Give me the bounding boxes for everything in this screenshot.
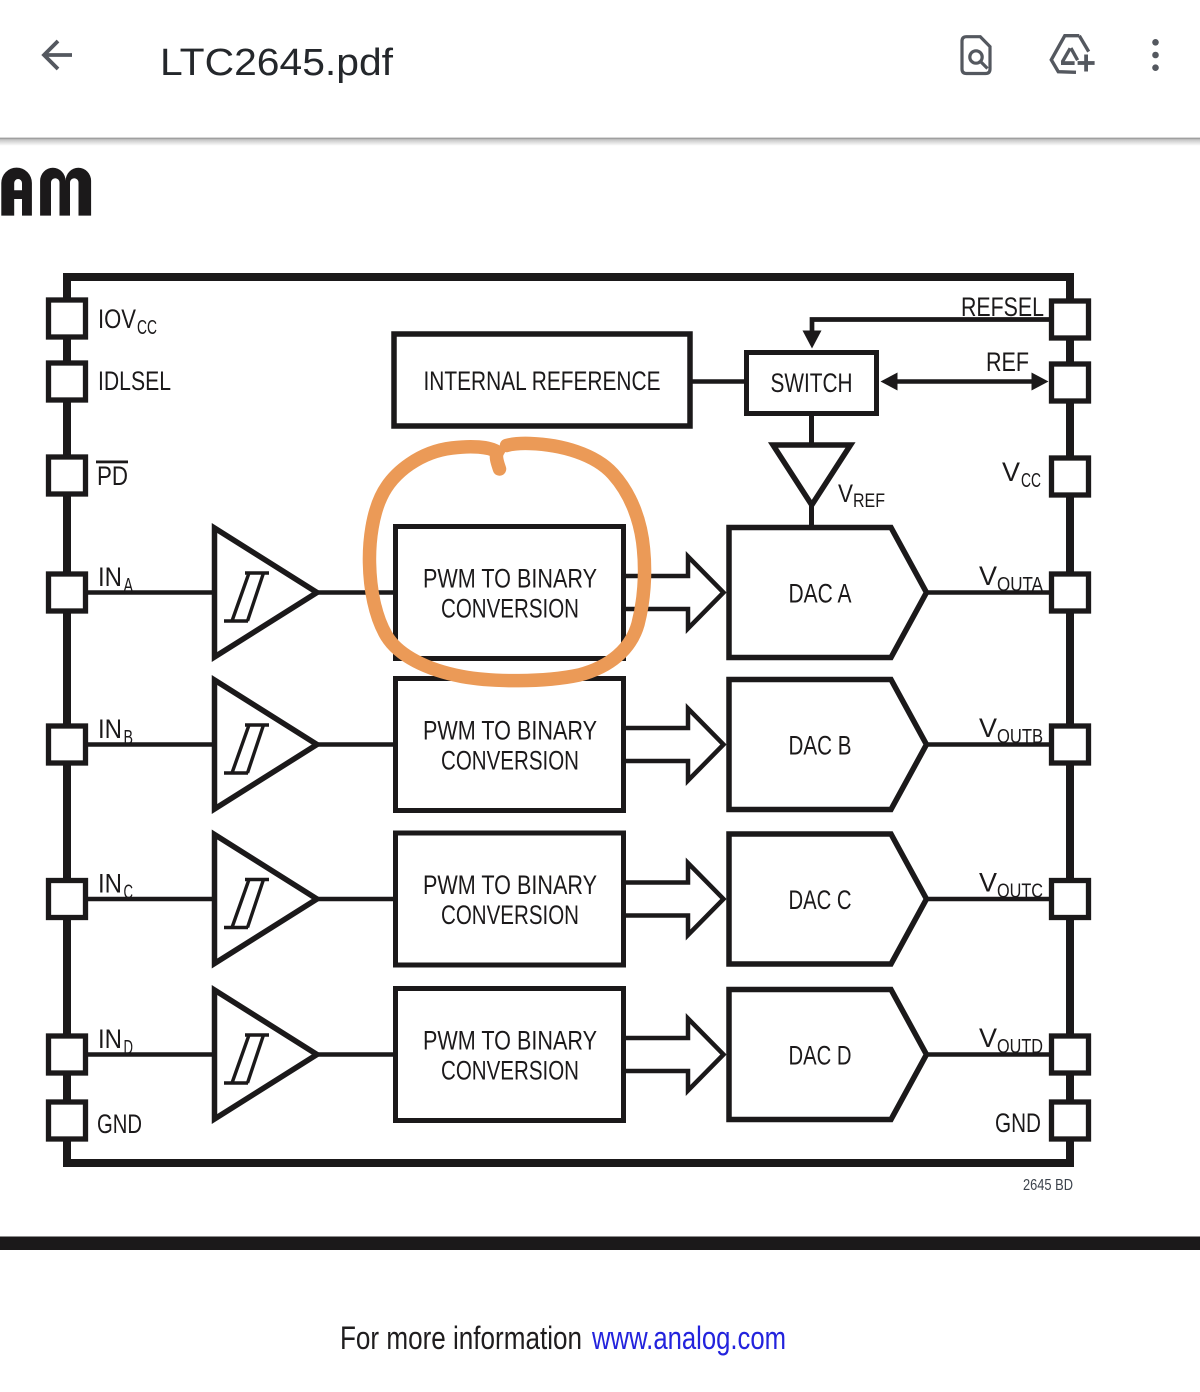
svg-text:PWM TO BINARY: PWM TO BINARY xyxy=(423,564,597,594)
svg-text:DAC B: DAC B xyxy=(789,731,852,761)
svg-text:IOV: IOV xyxy=(98,304,136,334)
svg-text:V: V xyxy=(1002,457,1020,487)
svg-text:LTC2645.pdf: LTC2645.pdf xyxy=(160,42,393,84)
svg-text:V: V xyxy=(979,713,997,743)
svg-text:V: V xyxy=(838,480,853,508)
svg-text:2645 BD: 2645 BD xyxy=(1023,1177,1073,1194)
svg-text:GND: GND xyxy=(995,1108,1041,1138)
svg-text:DAC A: DAC A xyxy=(789,579,852,609)
svg-text:www.analog.com: www.analog.com xyxy=(591,1320,786,1356)
svg-text:IDLSEL: IDLSEL xyxy=(98,366,171,396)
svg-text:IN: IN xyxy=(98,1024,122,1054)
svg-text:CC: CC xyxy=(137,317,157,339)
svg-text:For more information: For more information xyxy=(340,1320,582,1356)
svg-text:REF: REF xyxy=(853,491,885,512)
svg-text:IN: IN xyxy=(98,714,122,744)
svg-text:PD: PD xyxy=(97,461,128,491)
svg-text:IN: IN xyxy=(98,562,122,592)
svg-text:V: V xyxy=(979,561,997,591)
svg-text:IN: IN xyxy=(98,869,122,899)
svg-text:CONVERSION: CONVERSION xyxy=(441,900,579,930)
svg-text:GND: GND xyxy=(97,1109,142,1139)
svg-text:DAC D: DAC D xyxy=(789,1041,852,1071)
svg-text:DAC C: DAC C xyxy=(789,885,852,915)
svg-text:INTERNAL REFERENCE: INTERNAL REFERENCE xyxy=(424,366,661,396)
svg-text:CONVERSION: CONVERSION xyxy=(441,746,579,776)
svg-text:SWITCH: SWITCH xyxy=(771,368,853,398)
svg-text:REF: REF xyxy=(986,347,1029,377)
svg-text:PWM TO BINARY: PWM TO BINARY xyxy=(423,1026,597,1056)
svg-text:PWM TO BINARY: PWM TO BINARY xyxy=(423,716,597,746)
svg-text:CC: CC xyxy=(1021,470,1041,492)
svg-text:CONVERSION: CONVERSION xyxy=(441,1056,579,1086)
svg-text:PWM TO BINARY: PWM TO BINARY xyxy=(423,870,597,900)
svg-text:V: V xyxy=(979,1023,997,1053)
svg-text:V: V xyxy=(979,868,997,898)
svg-text:CONVERSION: CONVERSION xyxy=(441,594,579,624)
